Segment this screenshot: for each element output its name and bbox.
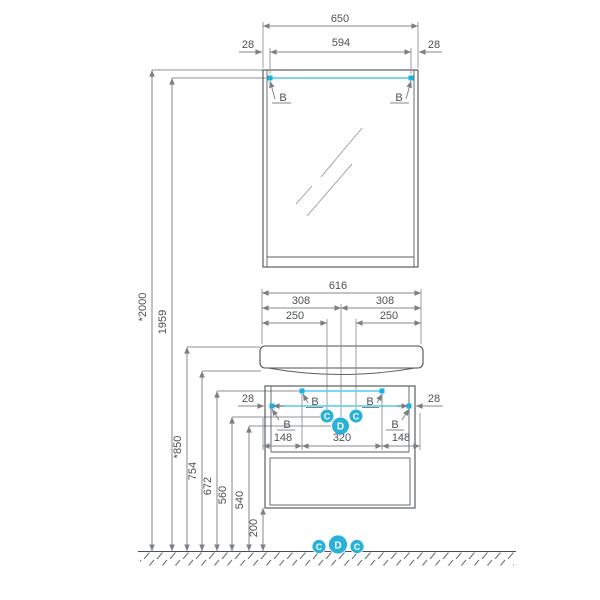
dim-616-label: 616: [329, 280, 347, 292]
callout-leader: [270, 81, 275, 99]
floor-connection-points: C C D: [312, 535, 364, 554]
mirror-glass-slash: [307, 164, 352, 216]
height-850-label: *850: [172, 436, 184, 459]
dim-148-right-label: 148: [392, 432, 410, 444]
dim-594-label: 594: [332, 37, 350, 49]
drawing-svg: *2000 1959 *850 754 672 560: [0, 0, 600, 600]
mirror-glass-slash: [296, 186, 312, 204]
mirror-bracket-point-left: [268, 76, 273, 81]
basin-dimensions: 616 308 308 250 250: [262, 280, 421, 417]
height-dim-supply: 560: [217, 417, 320, 551]
mirror-bracket-callout-left: B: [270, 81, 291, 104]
dim-250-right-label: 250: [380, 310, 398, 322]
callout-leader: [406, 81, 411, 99]
mirror-bracket-callout-right: B: [390, 81, 411, 104]
height-200-label: 200: [248, 519, 260, 537]
cabinet-outline: [265, 386, 415, 508]
height-672-label: 672: [202, 477, 214, 495]
cab-28-left-label: 28: [242, 393, 254, 405]
callout-leader: [377, 394, 382, 403]
connection-points: C C D: [321, 410, 363, 435]
height-dim-cabinet-bottom: 200: [248, 508, 263, 551]
floor-supply-c-label: C: [316, 542, 323, 552]
cab-28-right-label: 28: [428, 393, 440, 405]
bracket-b-label: B: [279, 92, 286, 104]
height-dim-basin-top: *850: [172, 347, 260, 551]
bracket-b-label: B: [391, 419, 398, 431]
height-total-label: *2000: [137, 293, 149, 322]
mirror-glass-slash: [321, 128, 362, 177]
bracket-b-label: B: [366, 396, 373, 408]
mirror-cabinet: B B: [263, 70, 418, 267]
mirror-dimensions: 650 594 28 28: [239, 13, 442, 74]
supply-c-label: C: [353, 412, 360, 422]
height-dim-total: *2000: [137, 70, 263, 551]
floor-drain-d-label: D: [334, 541, 341, 552]
installation-drawing: *2000 1959 *850 754 672 560: [0, 0, 600, 600]
washbasin: [260, 346, 423, 375]
supply-c-label: C: [324, 412, 331, 422]
floor-hatch: [140, 553, 514, 566]
bracket-b-label: B: [283, 419, 290, 431]
dim-250-left-label: 250: [286, 310, 304, 322]
floor: [138, 552, 516, 566]
bracket-b-label: B: [395, 92, 402, 104]
mirror-bracket-point-right: [409, 76, 414, 81]
height-540-label: 540: [234, 491, 246, 509]
height-754-label: 754: [187, 462, 199, 480]
callout-leader: [272, 409, 279, 420]
cabinet-bracket-callout-lower-left: B: [272, 409, 295, 431]
basin-bowl-curve: [268, 368, 415, 375]
dim-308-right-label: 308: [376, 295, 394, 307]
dim-650-label: 650: [331, 13, 349, 25]
drain-d-label: D: [337, 422, 344, 433]
callout-leader: [303, 394, 308, 403]
drawer-front: [270, 458, 410, 505]
vanity-cabinet: [265, 386, 415, 508]
basin-rim: [260, 346, 423, 368]
dim-28-left-label: 28: [242, 39, 254, 51]
callout-leader: [402, 409, 409, 420]
bracket-b-label: B: [311, 396, 318, 408]
bracket-point-upper-right: [380, 389, 385, 394]
height-1959-label: 1959: [157, 310, 169, 334]
dim-148-left-label: 148: [274, 432, 292, 444]
dim-308-left-label: 308: [292, 295, 310, 307]
bracket-point-upper-left: [300, 389, 305, 394]
cabinet-bracket-callout-lower-right: B: [386, 409, 409, 431]
dim-28-right-label: 28: [428, 39, 440, 51]
height-560-label: 560: [217, 486, 229, 504]
floor-supply-c-label: C: [354, 542, 361, 552]
